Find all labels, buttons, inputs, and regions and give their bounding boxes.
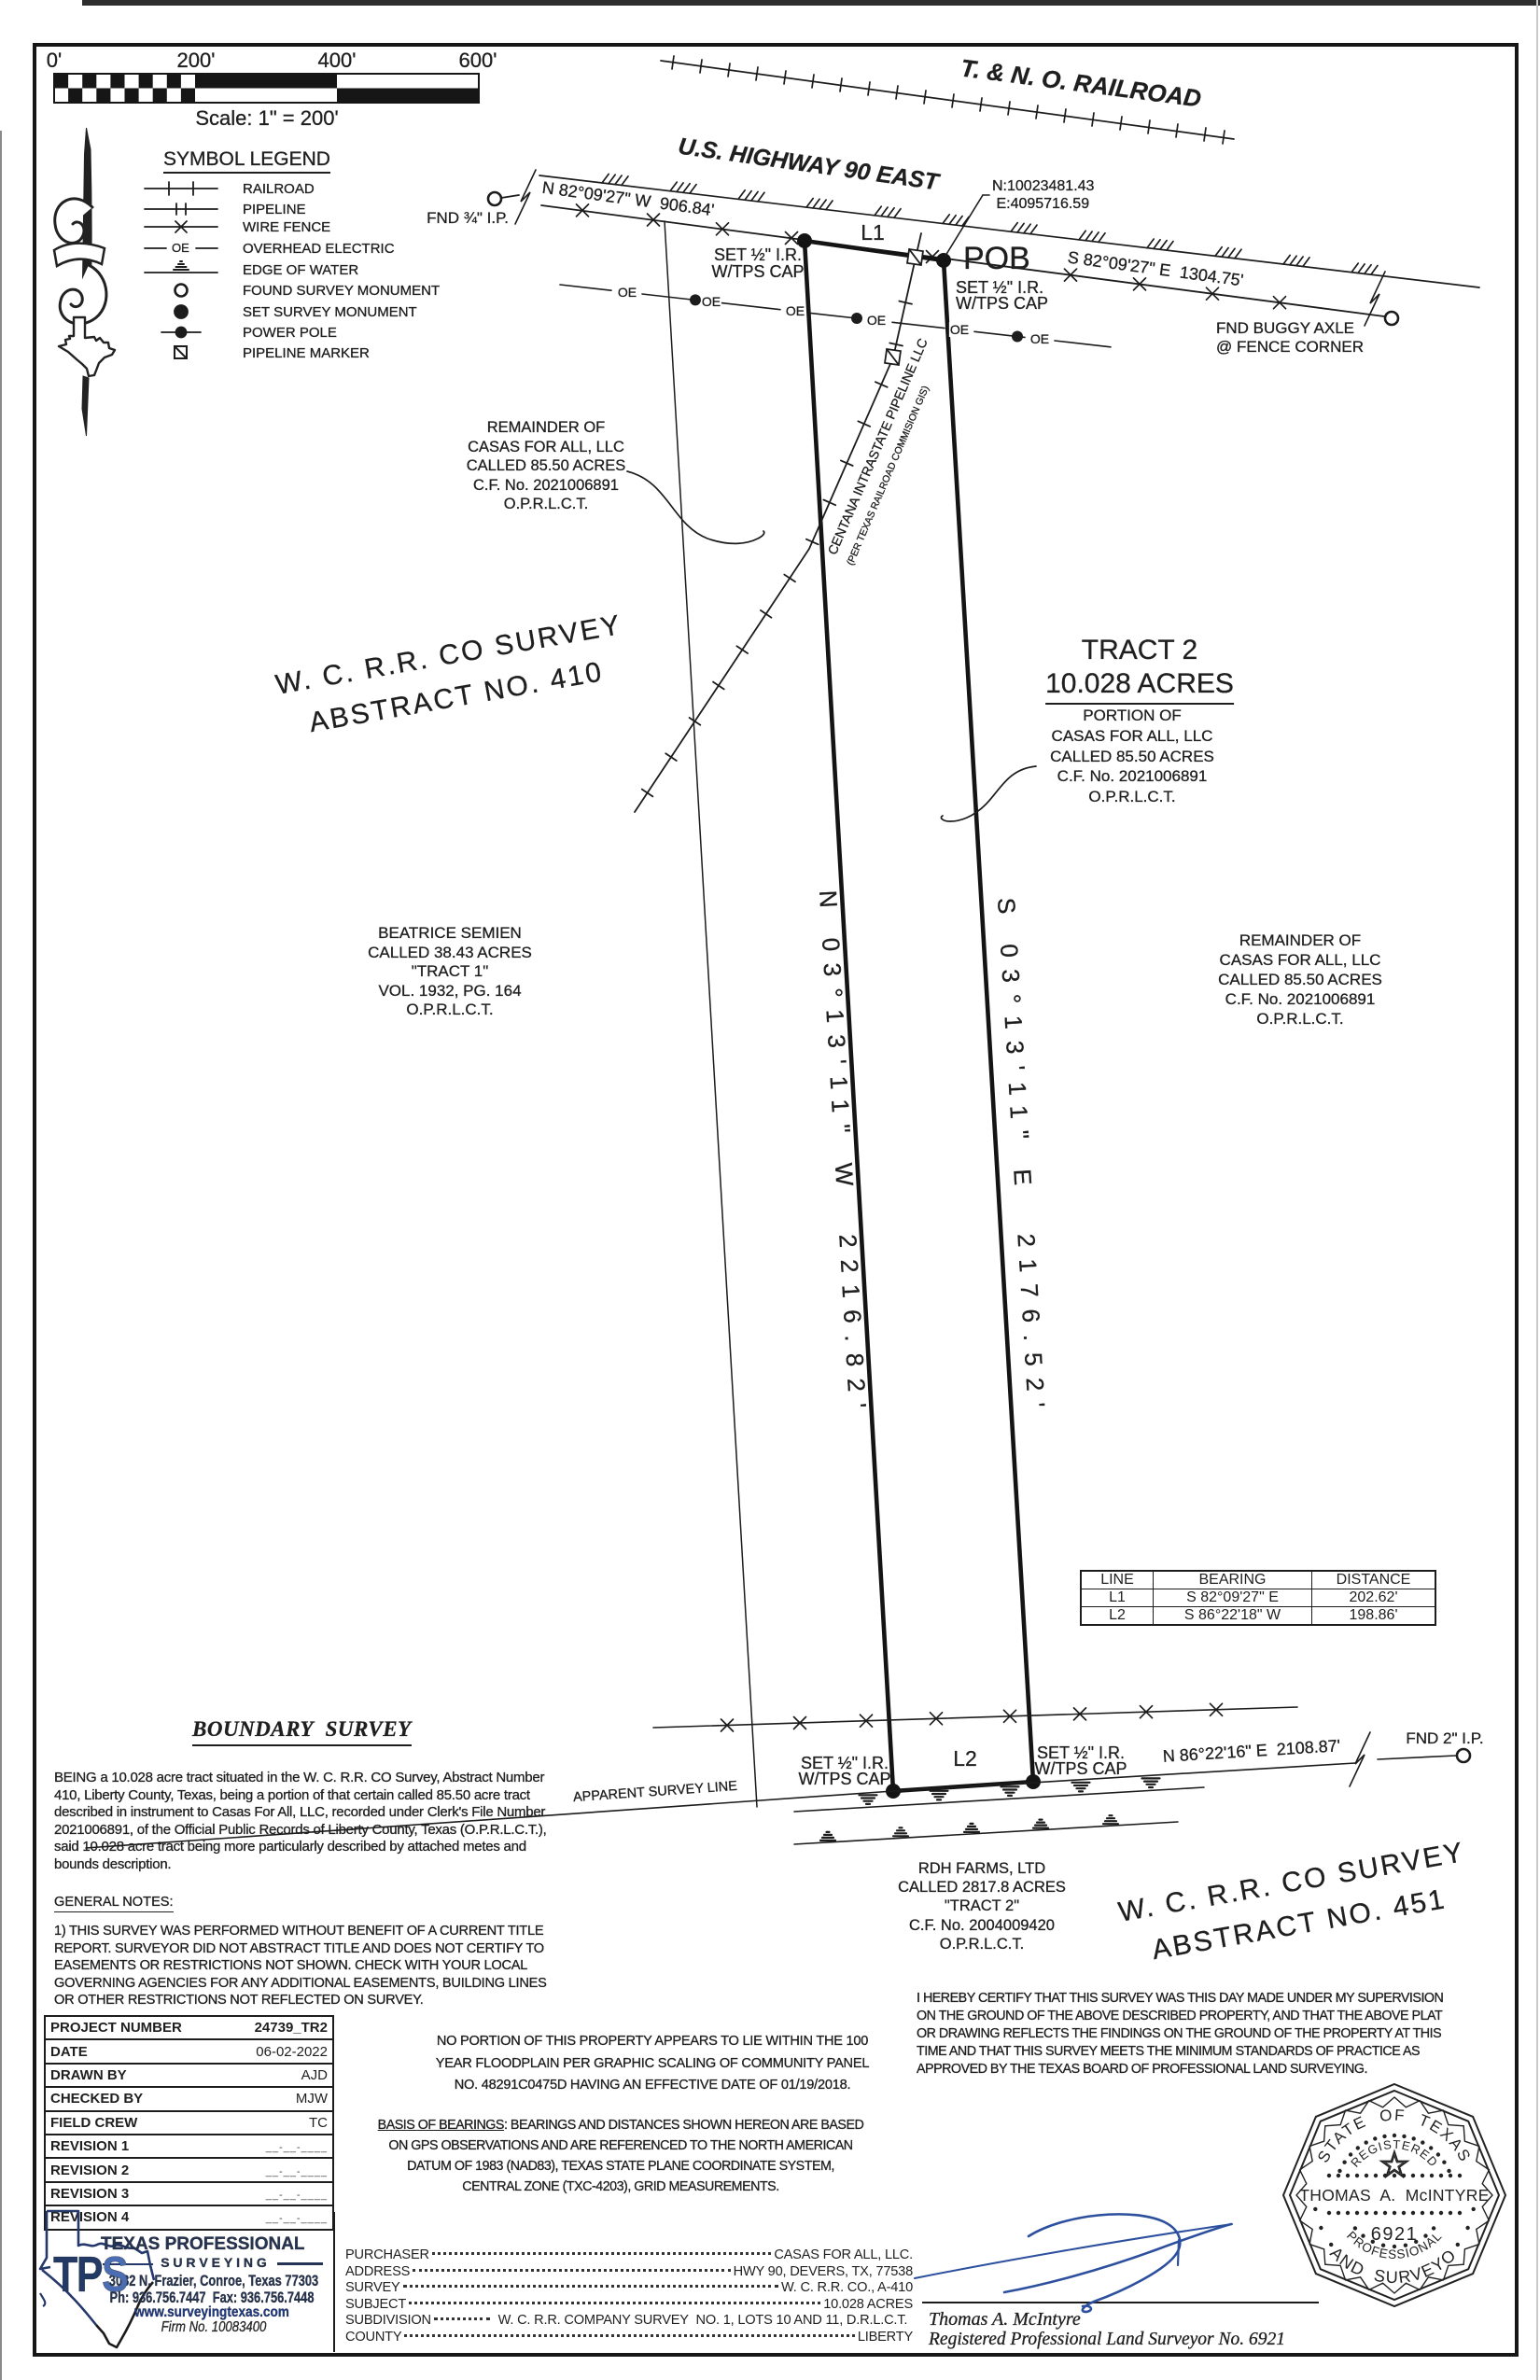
svg-text:LAND SURVEYOR: LAND SURVEYOR xyxy=(0,0,1461,2287)
svg-text:THOMAS A. McINTYRE: THOMAS A. McINTYRE xyxy=(1299,2186,1489,2205)
svg-text:6921: 6921 xyxy=(1371,2224,1419,2245)
